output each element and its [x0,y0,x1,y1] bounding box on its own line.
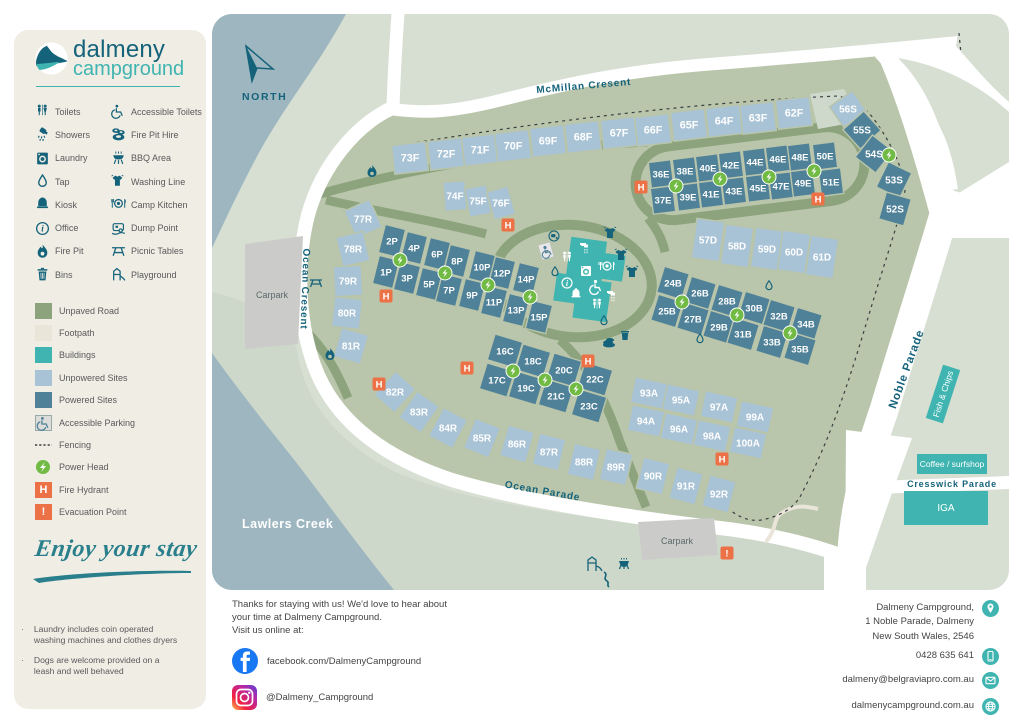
svg-text:Cresswick Parade: Cresswick Parade [907,479,997,489]
svg-text:64F: 64F [715,115,734,127]
svg-text:98A: 98A [703,431,721,442]
svg-text:25B: 25B [658,306,676,317]
svg-text:NORTH: NORTH [242,91,287,103]
svg-text:97A: 97A [710,402,728,413]
svg-text:4P: 4P [408,243,420,254]
svg-text:49E: 49E [795,178,812,189]
svg-text:59D: 59D [758,244,776,255]
svg-text:29B: 29B [710,322,728,333]
svg-text:53S: 53S [885,175,903,186]
svg-text:43E: 43E [726,186,743,197]
svg-text:100A: 100A [736,438,760,449]
svg-text:46E: 46E [770,154,787,165]
svg-text:30B: 30B [745,303,763,314]
svg-text:H: H [505,221,512,232]
svg-text:65F: 65F [680,119,699,131]
svg-text:81R: 81R [342,341,361,352]
svg-text:95A: 95A [672,395,690,406]
svg-text:13P: 13P [508,305,526,316]
svg-text:27B: 27B [684,314,702,325]
svg-text:H: H [376,380,383,391]
svg-text:28B: 28B [718,296,736,307]
svg-text:54S: 54S [865,149,883,160]
svg-text:14P: 14P [518,274,536,285]
svg-text:76F: 76F [492,198,510,209]
svg-text:55S: 55S [853,125,871,136]
svg-text:93A: 93A [640,388,658,399]
svg-text:69F: 69F [539,135,558,147]
svg-text:H: H [585,357,592,368]
svg-text:47E: 47E [773,181,790,192]
svg-text:72F: 72F [437,148,456,160]
svg-text:71F: 71F [471,144,490,156]
svg-text:21C: 21C [547,391,565,402]
svg-text:19C: 19C [517,383,535,394]
svg-text:38E: 38E [677,166,694,177]
svg-text:85R: 85R [473,433,492,444]
svg-text:75F: 75F [469,196,487,207]
svg-text:!: ! [725,549,728,560]
svg-text:Coffee / surfshop: Coffee / surfshop [920,459,985,469]
svg-text:17C: 17C [488,375,506,386]
svg-text:83R: 83R [410,407,429,418]
svg-text:42E: 42E [723,160,740,171]
svg-text:39E: 39E [680,192,697,203]
svg-text:91R: 91R [677,481,696,492]
svg-text:32B: 32B [770,311,788,322]
svg-text:i: i [41,223,44,233]
svg-text:12P: 12P [494,268,512,279]
svg-text:36E: 36E [653,169,670,180]
svg-text:89R: 89R [607,462,626,473]
svg-text:82R: 82R [386,387,405,398]
svg-text:10P: 10P [474,262,492,273]
svg-text:35B: 35B [791,344,809,355]
svg-text:16C: 16C [496,346,514,357]
svg-text:Lawlers Creek: Lawlers Creek [242,517,333,531]
svg-text:50E: 50E [817,151,834,162]
svg-text:52S: 52S [886,204,904,215]
svg-text:94A: 94A [637,416,655,427]
svg-text:26B: 26B [691,288,709,299]
svg-text:20C: 20C [555,365,573,376]
svg-text:66F: 66F [644,124,663,136]
svg-text:24B: 24B [664,278,682,289]
svg-text:33B: 33B [763,337,781,348]
svg-text:22C: 22C [586,374,604,385]
svg-text:H: H [464,364,471,375]
svg-text:67F: 67F [610,127,629,139]
svg-text:87R: 87R [540,447,559,458]
svg-text:7P: 7P [443,285,455,296]
svg-text:45E: 45E [750,183,767,194]
svg-text:60D: 60D [785,247,803,258]
svg-text:78R: 78R [344,244,363,255]
svg-text:99A: 99A [746,412,764,423]
svg-text:58D: 58D [728,241,746,252]
svg-text:Carpark: Carpark [661,536,694,546]
svg-text:96A: 96A [670,424,688,435]
svg-text:70F: 70F [504,140,523,152]
svg-text:84R: 84R [439,423,458,434]
svg-text:79R: 79R [339,276,358,287]
svg-text:61D: 61D [813,252,831,263]
svg-text:92R: 92R [710,489,729,500]
svg-text:H: H [383,292,390,303]
svg-text:6P: 6P [431,249,443,260]
svg-text:62F: 62F [785,107,804,119]
svg-text:IGA: IGA [937,503,955,514]
svg-text:74F: 74F [446,191,464,202]
svg-text:5P: 5P [423,279,435,290]
svg-text:H: H [815,195,822,206]
svg-text:57D: 57D [699,235,717,246]
svg-text:18C: 18C [524,356,542,367]
svg-text:80R: 80R [338,308,357,319]
svg-text:34B: 34B [797,319,815,330]
svg-text:2P: 2P [386,236,398,247]
svg-text:15P: 15P [531,312,549,323]
svg-text:90R: 90R [644,471,663,482]
svg-text:51E: 51E [823,177,840,188]
svg-text:88R: 88R [575,457,594,468]
svg-text:40E: 40E [700,163,717,174]
svg-text:73F: 73F [401,152,420,164]
svg-text:Carpark: Carpark [256,290,289,300]
svg-text:86R: 86R [508,439,527,450]
svg-text:68F: 68F [574,131,593,143]
svg-text:56S: 56S [839,104,857,115]
svg-text:23C: 23C [580,401,598,412]
svg-text:3P: 3P [401,273,413,284]
svg-text:44E: 44E [747,157,764,168]
svg-text:63F: 63F [749,112,768,124]
svg-text:48E: 48E [792,152,809,163]
svg-text:37E: 37E [655,195,672,206]
svg-text:9P: 9P [466,290,478,301]
svg-text:77R: 77R [354,214,373,225]
svg-text:41E: 41E [703,189,720,200]
svg-text:H: H [638,183,645,194]
svg-text:H: H [719,455,726,466]
svg-text:11P: 11P [486,297,503,308]
svg-text:8P: 8P [451,256,463,267]
svg-text:1P: 1P [380,267,392,278]
svg-text:31B: 31B [734,329,752,340]
